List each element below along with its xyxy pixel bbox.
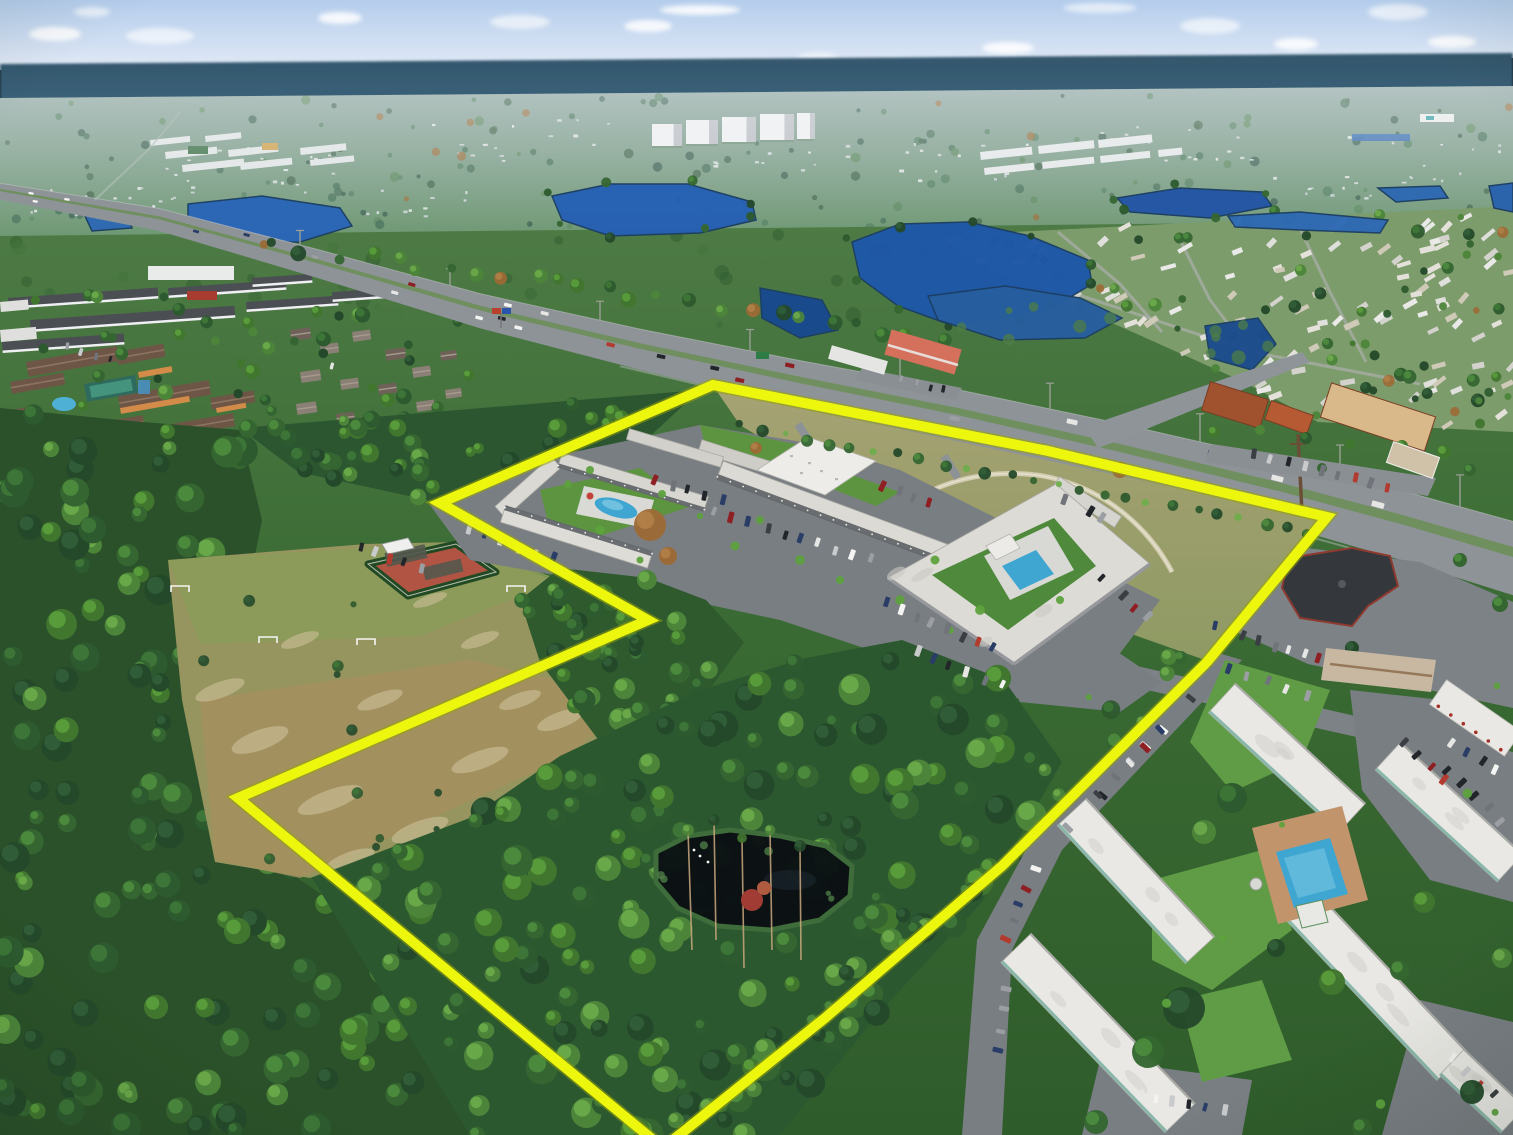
vignette	[0, 0, 1513, 1135]
aerial-photo-canvas	[0, 0, 1513, 1135]
aerial-photo	[0, 0, 1513, 1135]
